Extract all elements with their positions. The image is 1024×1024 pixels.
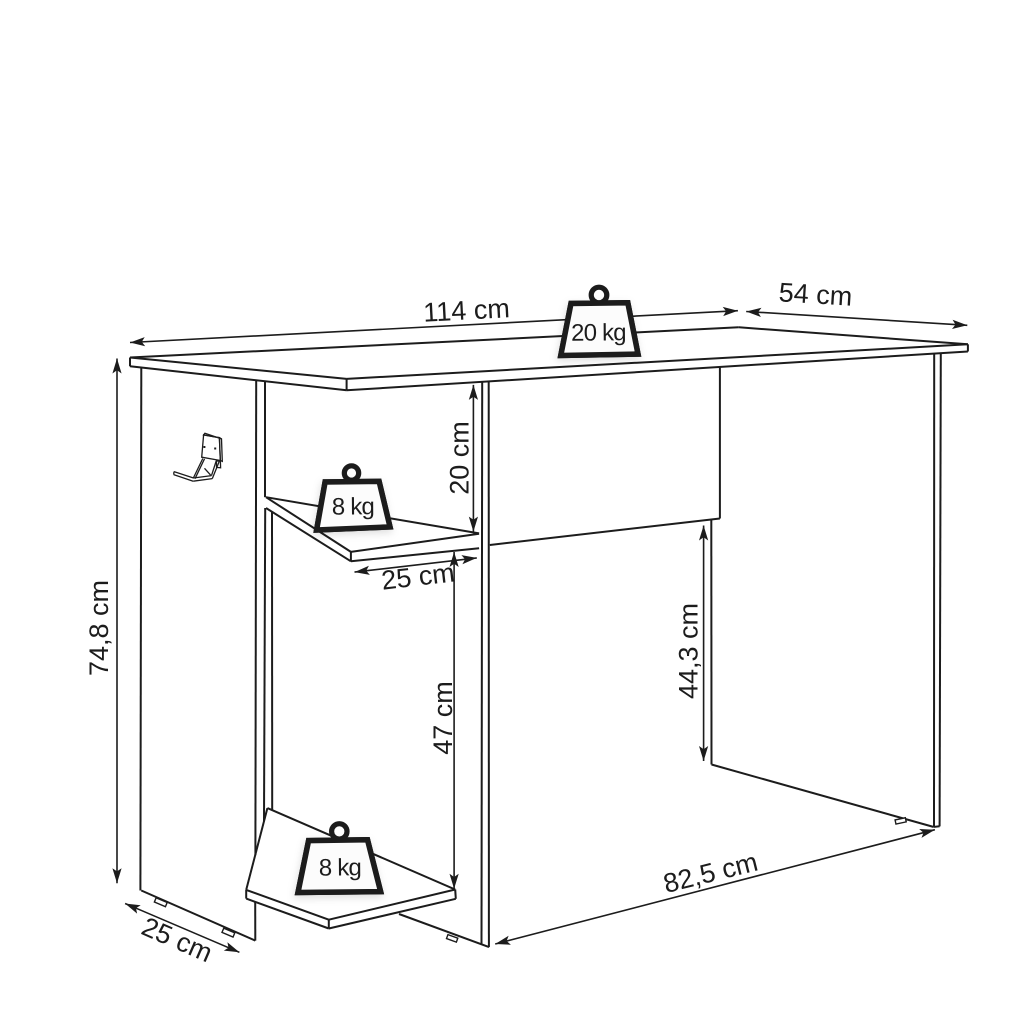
svg-text:20 kg: 20 kg	[571, 319, 626, 346]
svg-text:74,8 cm: 74,8 cm	[84, 580, 114, 676]
svg-text:47 cm: 47 cm	[428, 681, 458, 755]
svg-text:8 kg: 8 kg	[319, 854, 361, 881]
svg-text:54 cm: 54 cm	[778, 277, 853, 312]
svg-text:114 cm: 114 cm	[423, 293, 511, 327]
svg-text:8 kg: 8 kg	[332, 493, 374, 520]
svg-text:20 cm: 20 cm	[445, 421, 475, 495]
svg-text:44,3 cm: 44,3 cm	[674, 603, 704, 699]
